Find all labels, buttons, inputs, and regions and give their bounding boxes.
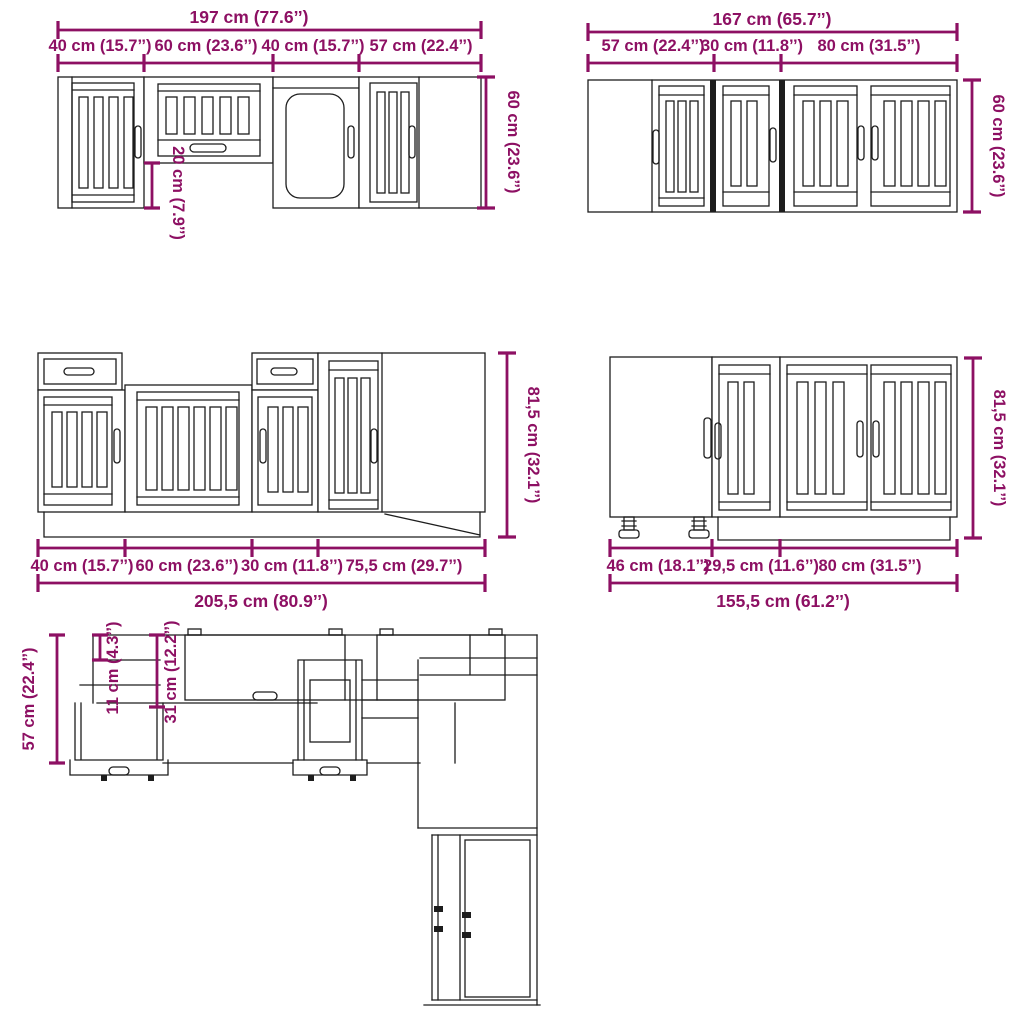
section-width-label: 40 cm (15.7’’) (30, 557, 133, 575)
plan-view-linework (70, 629, 540, 1005)
adjustable-foot (624, 517, 634, 530)
height-label: 81,5 cm (32.1’’) (524, 387, 542, 504)
section-width-label: 75,5 cm (29.7’’) (346, 557, 463, 575)
section-width-label: 46 cm (18.1’’) (606, 557, 709, 575)
section-width-label: 80 cm (31.5’’) (818, 557, 921, 575)
section-width-label: 57 cm (22.4’’) (601, 37, 704, 55)
height-label: 60 cm (23.6’’) (989, 94, 1007, 197)
hinge-mark (462, 932, 471, 938)
middle-cabinet-height-label: 20 cm (7.9’’) (169, 146, 187, 240)
plan-lower-depth-label: 31 cm (12.2’’) (162, 620, 180, 723)
plinth (44, 512, 480, 537)
drawer-notch (109, 767, 129, 775)
total-width-label: 155,5 cm (61.2’’) (716, 591, 850, 611)
height-label: 60 cm (23.6’’) (504, 90, 522, 193)
total-width-label: 167 cm (65.7’’) (712, 9, 831, 29)
section-width-label: 60 cm (23.6’’) (135, 557, 238, 575)
hinge-mark (434, 926, 443, 932)
plinth (718, 517, 950, 540)
section-width-label: 57 cm (22.4’’) (369, 37, 472, 55)
base-cabinets-right-linework (610, 357, 957, 540)
hinge-mark (462, 912, 471, 918)
section-width-label: 40 cm (15.7’’) (261, 37, 364, 55)
wall-cabinets-left-group: 197 cm (77.6’’) 40 cm (15.7’’) 60 cm (23… (48, 7, 522, 240)
plan-view-dimensions: 57 cm (22.4’’) 11 cm (4.3’’) 31 cm (12.2… (20, 620, 180, 763)
wall-cabinets-right-group: 167 cm (65.7’’) 57 cm (22.4’’) 30 cm (11… (588, 9, 1007, 212)
section-width-label: 30 cm (11.8’’) (701, 37, 803, 55)
total-width-label: 205,5 cm (80.9’’) (194, 591, 328, 611)
diagram-canvas: 197 cm (77.6’’) 40 cm (15.7’’) 60 cm (23… (0, 0, 1024, 1024)
drawer-notch (320, 767, 340, 775)
section-width-label: 29,5 cm (11.6’’) (703, 557, 819, 575)
section-width-label: 30 cm (11.8’’) (241, 557, 343, 575)
base-cabinets-left-group: 81,5 cm (32.1’’) 40 cm (15.7’’) 60 cm (2… (30, 353, 542, 611)
base-cabinets-right-group: 81,5 cm (32.1’’) 46 cm (18.1’’) 29,5 cm … (606, 357, 1008, 611)
section-width-label: 60 cm (23.6’’) (154, 37, 257, 55)
hinge-mark (434, 906, 443, 912)
total-width-label: 197 cm (77.6’’) (189, 7, 308, 27)
adjustable-foot (694, 517, 704, 530)
wall-cabinets-right-linework (588, 80, 957, 212)
section-width-label: 40 cm (15.7’’) (48, 37, 151, 55)
plan-depth-label: 57 cm (22.4’’) (20, 647, 38, 750)
height-label: 81,5 cm (32.1’’) (990, 390, 1008, 507)
section-width-label: 80 cm (31.5’’) (817, 37, 920, 55)
plan-upper-depth-label: 11 cm (4.3’’) (104, 622, 122, 715)
handle-notch (253, 692, 277, 700)
wall-cabinets-left-linework (58, 77, 481, 208)
kitchen-dimension-diagram: 197 cm (77.6’’) 40 cm (15.7’’) 60 cm (23… (0, 0, 1024, 1024)
base-cabinets-left-linework (38, 353, 485, 537)
plan-view-group: 57 cm (22.4’’) 11 cm (4.3’’) 31 cm (12.2… (20, 620, 540, 1005)
